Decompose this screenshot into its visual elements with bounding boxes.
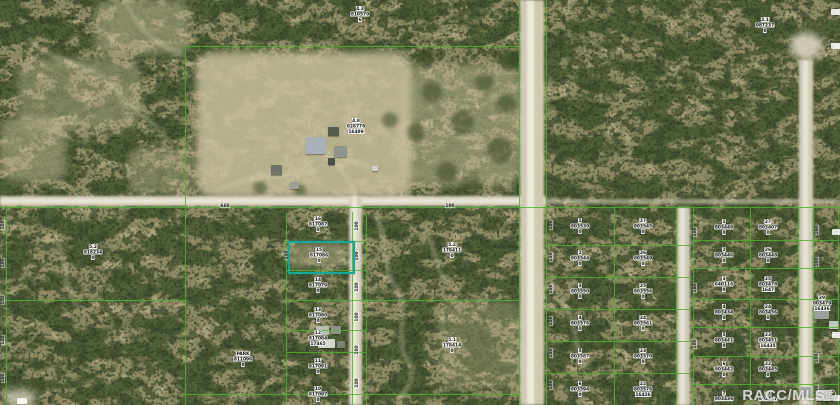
parcel-label-line: 817086	[309, 253, 328, 258]
dimension-tick: 100	[355, 221, 359, 231]
building	[337, 341, 345, 348]
dimension-tick: 100	[1, 335, 5, 345]
dimension-tick: 100	[355, 378, 359, 388]
parcel-label-lines: 2280357616426	[633, 381, 652, 397]
parcel-label-line: 0	[641, 261, 645, 266]
cutoff-parcel-label	[831, 9, 840, 15]
parcel-label: 278035450	[625, 212, 660, 241]
parcel-label-line: 178414	[442, 343, 461, 348]
parcel-label-lines: 138170800	[308, 307, 327, 323]
dimension-tick: 100	[355, 251, 359, 261]
parcel-label-lines: 5.28182340	[83, 244, 102, 260]
parcel-label-lines: 148170790	[308, 277, 327, 293]
parcel-label-line: 803544	[570, 256, 589, 261]
dimension-tick: 100	[1, 258, 5, 268]
parcel-label-lines: PARK8110960	[233, 351, 252, 367]
parcel-label-line: 0	[317, 258, 321, 263]
parcel-label-lines: 7803436	[714, 391, 733, 401]
parcel-label-line: 803570	[633, 354, 652, 359]
parcel-label-line: 22	[639, 381, 646, 386]
parcel-boundary-line-vertical	[798, 208, 799, 405]
parcel-label-line: 15	[315, 247, 322, 252]
parcel-label: 68035940	[562, 375, 597, 404]
building	[334, 146, 347, 157]
parcel-label: 4.38105706	[342, 0, 377, 29]
parcel-label-line: 3	[722, 276, 726, 281]
parcel-label: PARK8110960	[225, 345, 260, 374]
parcel-label-line: 25	[639, 283, 646, 288]
dimension-tick: 100	[549, 380, 553, 390]
parcel-label-line: 29	[818, 295, 825, 300]
parcel-label: 7803436	[706, 387, 741, 405]
parcel-label-line: 817084	[308, 336, 327, 341]
parcel-boundary-line-vertical	[693, 208, 694, 405]
dimension-tick: 100	[693, 283, 697, 293]
dimension-tick: 100	[355, 345, 359, 355]
parcel-label-line: 803478	[758, 282, 777, 287]
parcel-label-line: 26	[764, 247, 771, 252]
dimension-tick: 100	[815, 257, 819, 267]
parcel-label-line: 16426	[635, 392, 651, 397]
parcel-label-line: 803451	[758, 338, 777, 343]
parcel-label-line: 803576	[633, 387, 652, 392]
cutoff-parcel-label	[17, 398, 27, 404]
parcel-label: 248035610	[625, 309, 660, 338]
parcel-label-lines: 238035700	[633, 348, 652, 364]
parcel-label-line: 0	[578, 261, 582, 266]
parcel-label: 2380345116435	[750, 326, 785, 355]
parcel-label: 58034410	[706, 326, 741, 355]
parcel-boundary-line-vertical	[366, 212, 367, 405]
parcel-label: 248034560	[750, 298, 785, 327]
parcel-label: 258034781647	[750, 270, 785, 299]
parcel-label-line: 6	[578, 381, 582, 386]
parcel-label-lines: 4.882877816499	[346, 118, 365, 134]
parcel-label: 158170860	[301, 241, 336, 270]
parcel-label-lines: 258035560	[633, 283, 652, 299]
parcel-label-line: 16436	[814, 306, 830, 311]
parcel-boundary-line-vertical	[546, 0, 547, 405]
building	[271, 165, 282, 175]
parcel-label-lines: 248034560	[758, 304, 777, 320]
parcel-label-line: 4	[578, 315, 582, 320]
parcel-label-line: 11	[314, 358, 321, 363]
parcel-label-line: 0	[641, 359, 645, 364]
parcel-label-lines: 5.21784110	[442, 242, 461, 258]
dimension-tick: 100	[549, 220, 553, 230]
parcel-label-line: 0	[722, 230, 726, 235]
parcel-label: 168170870	[300, 210, 335, 239]
parcel-label-line: 803479	[812, 301, 831, 306]
mls-watermark: RACC/MLS©	[742, 387, 837, 404]
parcel-label-line: 818234	[83, 250, 102, 255]
dimension-tick: 100	[549, 348, 553, 358]
parcel-label: 18035300	[562, 212, 597, 241]
parcel-label-line: 0	[766, 315, 770, 320]
parcel-label-line: 22	[764, 361, 771, 366]
parcel-label-lines: 268034480	[758, 247, 777, 263]
parcel-label-lines: 28035440	[570, 250, 589, 266]
parcel-label-line: 27	[764, 219, 771, 224]
parcel-label-lines: 268035490	[633, 250, 652, 266]
parcel-boundary-line-horizontal	[185, 394, 519, 395]
parcel-label-lines: 248035610	[633, 315, 652, 331]
parcel-label: 18034480	[706, 213, 741, 242]
parcel-label-line: 0	[316, 397, 320, 402]
parcel-label: 268034480	[750, 241, 785, 270]
parcel-label-lines: 278034070	[758, 219, 777, 235]
parcel-label-line: 16499	[348, 129, 364, 134]
parcel-label-lines: 118170910	[308, 358, 327, 374]
cutoff-parcel-label	[831, 43, 840, 49]
dimension-tick: 100	[549, 252, 553, 262]
parcel-label: 268035490	[625, 244, 660, 273]
parcel-label-lines: 38035500	[570, 283, 589, 299]
parcel-label-line: 4	[722, 304, 726, 309]
parcel-label-line: 803456	[758, 310, 777, 315]
parcel-label-lines: 278035450	[633, 218, 652, 234]
parcel-label-lines: 58035870	[570, 348, 589, 364]
parcel-label-line: 16435	[760, 343, 776, 348]
parcel-label-line: 987237	[755, 23, 774, 28]
parcel-label-line: 817087	[308, 222, 327, 227]
dimension-tick: 100	[1, 373, 5, 383]
parcel-label-line: 5.1	[448, 337, 457, 342]
parcel-label-lines: 36401160	[714, 276, 733, 292]
dimension-tick: 100	[815, 225, 819, 235]
parcel-label-lines: 108170970	[308, 386, 327, 402]
parcel-boundary-line-vertical	[519, 0, 520, 405]
parcel-label-line: 2	[578, 250, 582, 255]
parcel-label-line: 803442	[714, 367, 733, 372]
parcel-label-line: 2.1	[761, 17, 770, 22]
parcel-label-lines: 68034420	[714, 361, 733, 377]
parcel-label-lines: 1281708417465	[308, 330, 327, 346]
parcel-label: 28035440	[562, 244, 597, 273]
parcel-label: 2280357616426	[625, 375, 660, 404]
parcel-label-line: 0	[450, 253, 454, 258]
parcel-label-line: 803441	[714, 338, 733, 343]
building	[290, 182, 299, 189]
dimension-tick: 660	[220, 204, 230, 208]
parcel-label-line: 10	[314, 386, 321, 391]
parcel-label-line: 12	[314, 330, 321, 335]
parcel-boundary-line-vertical	[614, 208, 615, 405]
parcel-label-line: 640116	[714, 282, 733, 287]
dimension-tick: 100	[355, 312, 359, 322]
parcel-label-line: 14	[314, 277, 321, 282]
parcel-label-line: 7	[722, 391, 726, 396]
parcel-label-line: 0	[641, 294, 645, 299]
parcel-label-line: 803434	[714, 310, 733, 315]
parcel-label-line: 817097	[308, 392, 327, 397]
parcel-label-line: 0	[641, 326, 645, 331]
parcel-label: 2.19872370	[747, 11, 782, 40]
parcel-label-line: 27	[639, 218, 646, 223]
parcel-boundary-line-vertical	[185, 46, 186, 405]
parcel-label-line: 817080	[308, 313, 327, 318]
parcel-label-line: 2	[722, 247, 726, 252]
parcel-label-line: 178411	[442, 248, 461, 253]
parcel-label-line: 1	[722, 219, 726, 224]
parcel-label: 238035700	[625, 342, 660, 371]
parcel-label-line: 817079	[308, 283, 327, 288]
parcel-label-line: 828778	[346, 124, 365, 129]
dimension-tick: 100	[445, 204, 455, 208]
parcel-boundary-line-vertical	[6, 208, 7, 405]
parcel-label-line: 803407	[758, 225, 777, 230]
parcel-label-lines: 2380345116435	[758, 332, 777, 348]
parcel-boundary-line-horizontal	[185, 46, 519, 47]
parcel-label-lines: 48035760	[570, 315, 589, 331]
parcel-label-line: 0	[316, 227, 320, 232]
parcel-label-line: 5	[722, 332, 726, 337]
parcel-label-lines: 2.19872370	[755, 17, 774, 33]
parcel-label-line: 810570	[350, 12, 369, 17]
dimension-tick: 100	[1, 220, 5, 230]
parcel-label-line: 24	[764, 304, 771, 309]
parcel-label-lines: 2980347916436	[812, 295, 831, 311]
parcel-label-line: 23	[639, 348, 646, 353]
parcel-label-line: 0	[766, 372, 770, 377]
parcel-label-line: 803448	[758, 253, 777, 258]
building	[328, 158, 335, 165]
parcel-label-line: 0	[722, 343, 726, 348]
parcel-label-line: 23	[764, 332, 771, 337]
parcel-label-line: 811096	[233, 357, 252, 362]
parcel-label: 4.882877816499	[338, 112, 373, 141]
parcel-label-line: 803594	[570, 387, 589, 392]
parcel-label-line: 0	[722, 258, 726, 263]
parcel-label-line: 0	[722, 372, 726, 377]
parcel-boundary-line-vertical	[676, 208, 677, 405]
parcel-label-line: 0	[766, 230, 770, 235]
parcel-label: 68034420	[706, 355, 741, 384]
parcel-label: 118170910	[300, 352, 335, 381]
parcel-label: 38035500	[562, 277, 597, 306]
parcel-label: 58035870	[562, 342, 597, 371]
building	[372, 166, 378, 171]
parcel-label-lines: 18035300	[570, 218, 589, 234]
parcel-label-line: 803446	[714, 253, 733, 258]
dimension-tick: 100	[549, 284, 553, 294]
parcel-label-line: 0	[91, 255, 95, 260]
parcel-label: 258035560	[625, 277, 660, 306]
parcel-label-line: 0	[578, 392, 582, 397]
dimension-tick: 100	[693, 339, 697, 349]
parcel-label: 28034460	[706, 241, 741, 270]
parcel-label-line: 0	[766, 258, 770, 263]
parcel-label-line: 0	[316, 288, 320, 293]
parcel-label-line: 4.8	[352, 118, 361, 123]
parcel-label-line: 803445	[758, 367, 777, 372]
parcel-label-line: PARK	[236, 351, 250, 356]
parcel-overlay: 4.381057064.8828778164992.198723705.2818…	[0, 0, 840, 405]
dimension-tick: 100	[549, 316, 553, 326]
parcel-label-line: 803561	[633, 321, 652, 326]
parcel-boundary-line-horizontal	[0, 207, 840, 208]
parcel-label-lines: 258034781647	[758, 276, 777, 292]
parcel-label-line: 0	[578, 229, 582, 234]
building	[306, 137, 326, 154]
dimension-tick: 100	[1, 295, 5, 305]
parcel-label-lines: 68035940	[570, 381, 589, 397]
parcel-label: 148170790	[300, 271, 335, 300]
parcel-label-line: 25	[764, 276, 771, 281]
parcel-label: 2980347916436	[804, 289, 839, 318]
parcel-boundary-line-horizontal	[0, 300, 187, 301]
parcel-label-line: 17465	[310, 341, 326, 346]
parcel-label-line: 817091	[308, 364, 327, 369]
parcel-label: 5.28182340	[75, 238, 110, 267]
parcel-label-line: 6	[722, 361, 726, 366]
parcel-label: 48034340	[706, 298, 741, 327]
parcel-label-line: 24	[639, 315, 646, 320]
parcel-label-line: 803549	[633, 256, 652, 261]
parcel-label-line: 0	[316, 369, 320, 374]
parcel-label-lines: 4.38105706	[350, 6, 369, 22]
parcel-label-line: 803448	[714, 225, 733, 230]
parcel-label-line: 0	[450, 348, 454, 353]
parcel-label-line: 803550	[570, 289, 589, 294]
parcel-label-line: 16	[314, 216, 321, 221]
parcel-label-line: 0	[763, 28, 767, 33]
dimension-tick: 100	[355, 282, 359, 292]
parcel-label: 278034070	[750, 213, 785, 242]
parcel-label-line: 5	[578, 348, 582, 353]
parcel-label-line: 803587	[570, 354, 589, 359]
parcel-label-line: 0	[241, 362, 245, 367]
parcel-label-lines: 5.11784140	[442, 337, 461, 353]
parcel-label-line: 4.3	[356, 6, 365, 11]
parcel-label-line: 3	[578, 283, 582, 288]
parcel-label-lines: 158170860	[309, 247, 328, 263]
parcel-label-line: 0	[578, 359, 582, 364]
dimension-tick: 100	[815, 353, 819, 363]
parcel-label: 108170970	[300, 380, 335, 405]
parcel-label-line: 803576	[570, 321, 589, 326]
cutoff-parcel-label	[832, 332, 840, 338]
parcel-label-lines: 18034480	[714, 219, 733, 235]
parcel-label-lines: 28034460	[714, 247, 733, 263]
parcel-label-lines: 228034450	[758, 361, 777, 377]
parcel-label: 228034450	[750, 355, 785, 384]
cutoff-parcel-label	[832, 229, 840, 235]
parcel-label-line: 803436	[714, 396, 733, 401]
parcel-label-line: 0	[316, 318, 320, 323]
parcel-label-line: 1647	[761, 287, 774, 292]
parcel-label: 5.21784110	[434, 236, 469, 265]
parcel-label-line: 803530	[570, 224, 589, 229]
parcel-label-line: 0	[641, 229, 645, 234]
parcel-label-line: 0	[722, 287, 726, 292]
parcel-label-line: 26	[639, 250, 646, 255]
parcel-label-line: 0	[578, 294, 582, 299]
parcel-label: 36401160	[706, 270, 741, 299]
parcel-label-line: 6	[358, 17, 362, 22]
aerial-parcel-map: 4.381057064.8828778164992.198723705.2818…	[0, 0, 840, 405]
parcel-label-lines: 58034410	[714, 332, 733, 348]
parcel-label: 1281708417465	[300, 324, 335, 353]
parcel-label-line: 0	[722, 315, 726, 320]
parcel-label-line: 803545	[633, 224, 652, 229]
parcel-label: 48035760	[562, 309, 597, 338]
parcel-label-lines: 168170870	[308, 216, 327, 232]
parcel-label-line: 13	[314, 307, 321, 312]
parcel-label: 5.11784140	[434, 331, 469, 360]
parcel-label-line: 0	[578, 326, 582, 331]
parcel-label-line: 5.2	[448, 242, 457, 247]
parcel-label-line: 803556	[633, 289, 652, 294]
dimension-tick: 100	[693, 227, 697, 237]
parcel-label-lines: 48034340	[714, 304, 733, 320]
parcel-label-line: 1	[578, 218, 582, 223]
parcel-label-line: 5.2	[89, 244, 98, 249]
